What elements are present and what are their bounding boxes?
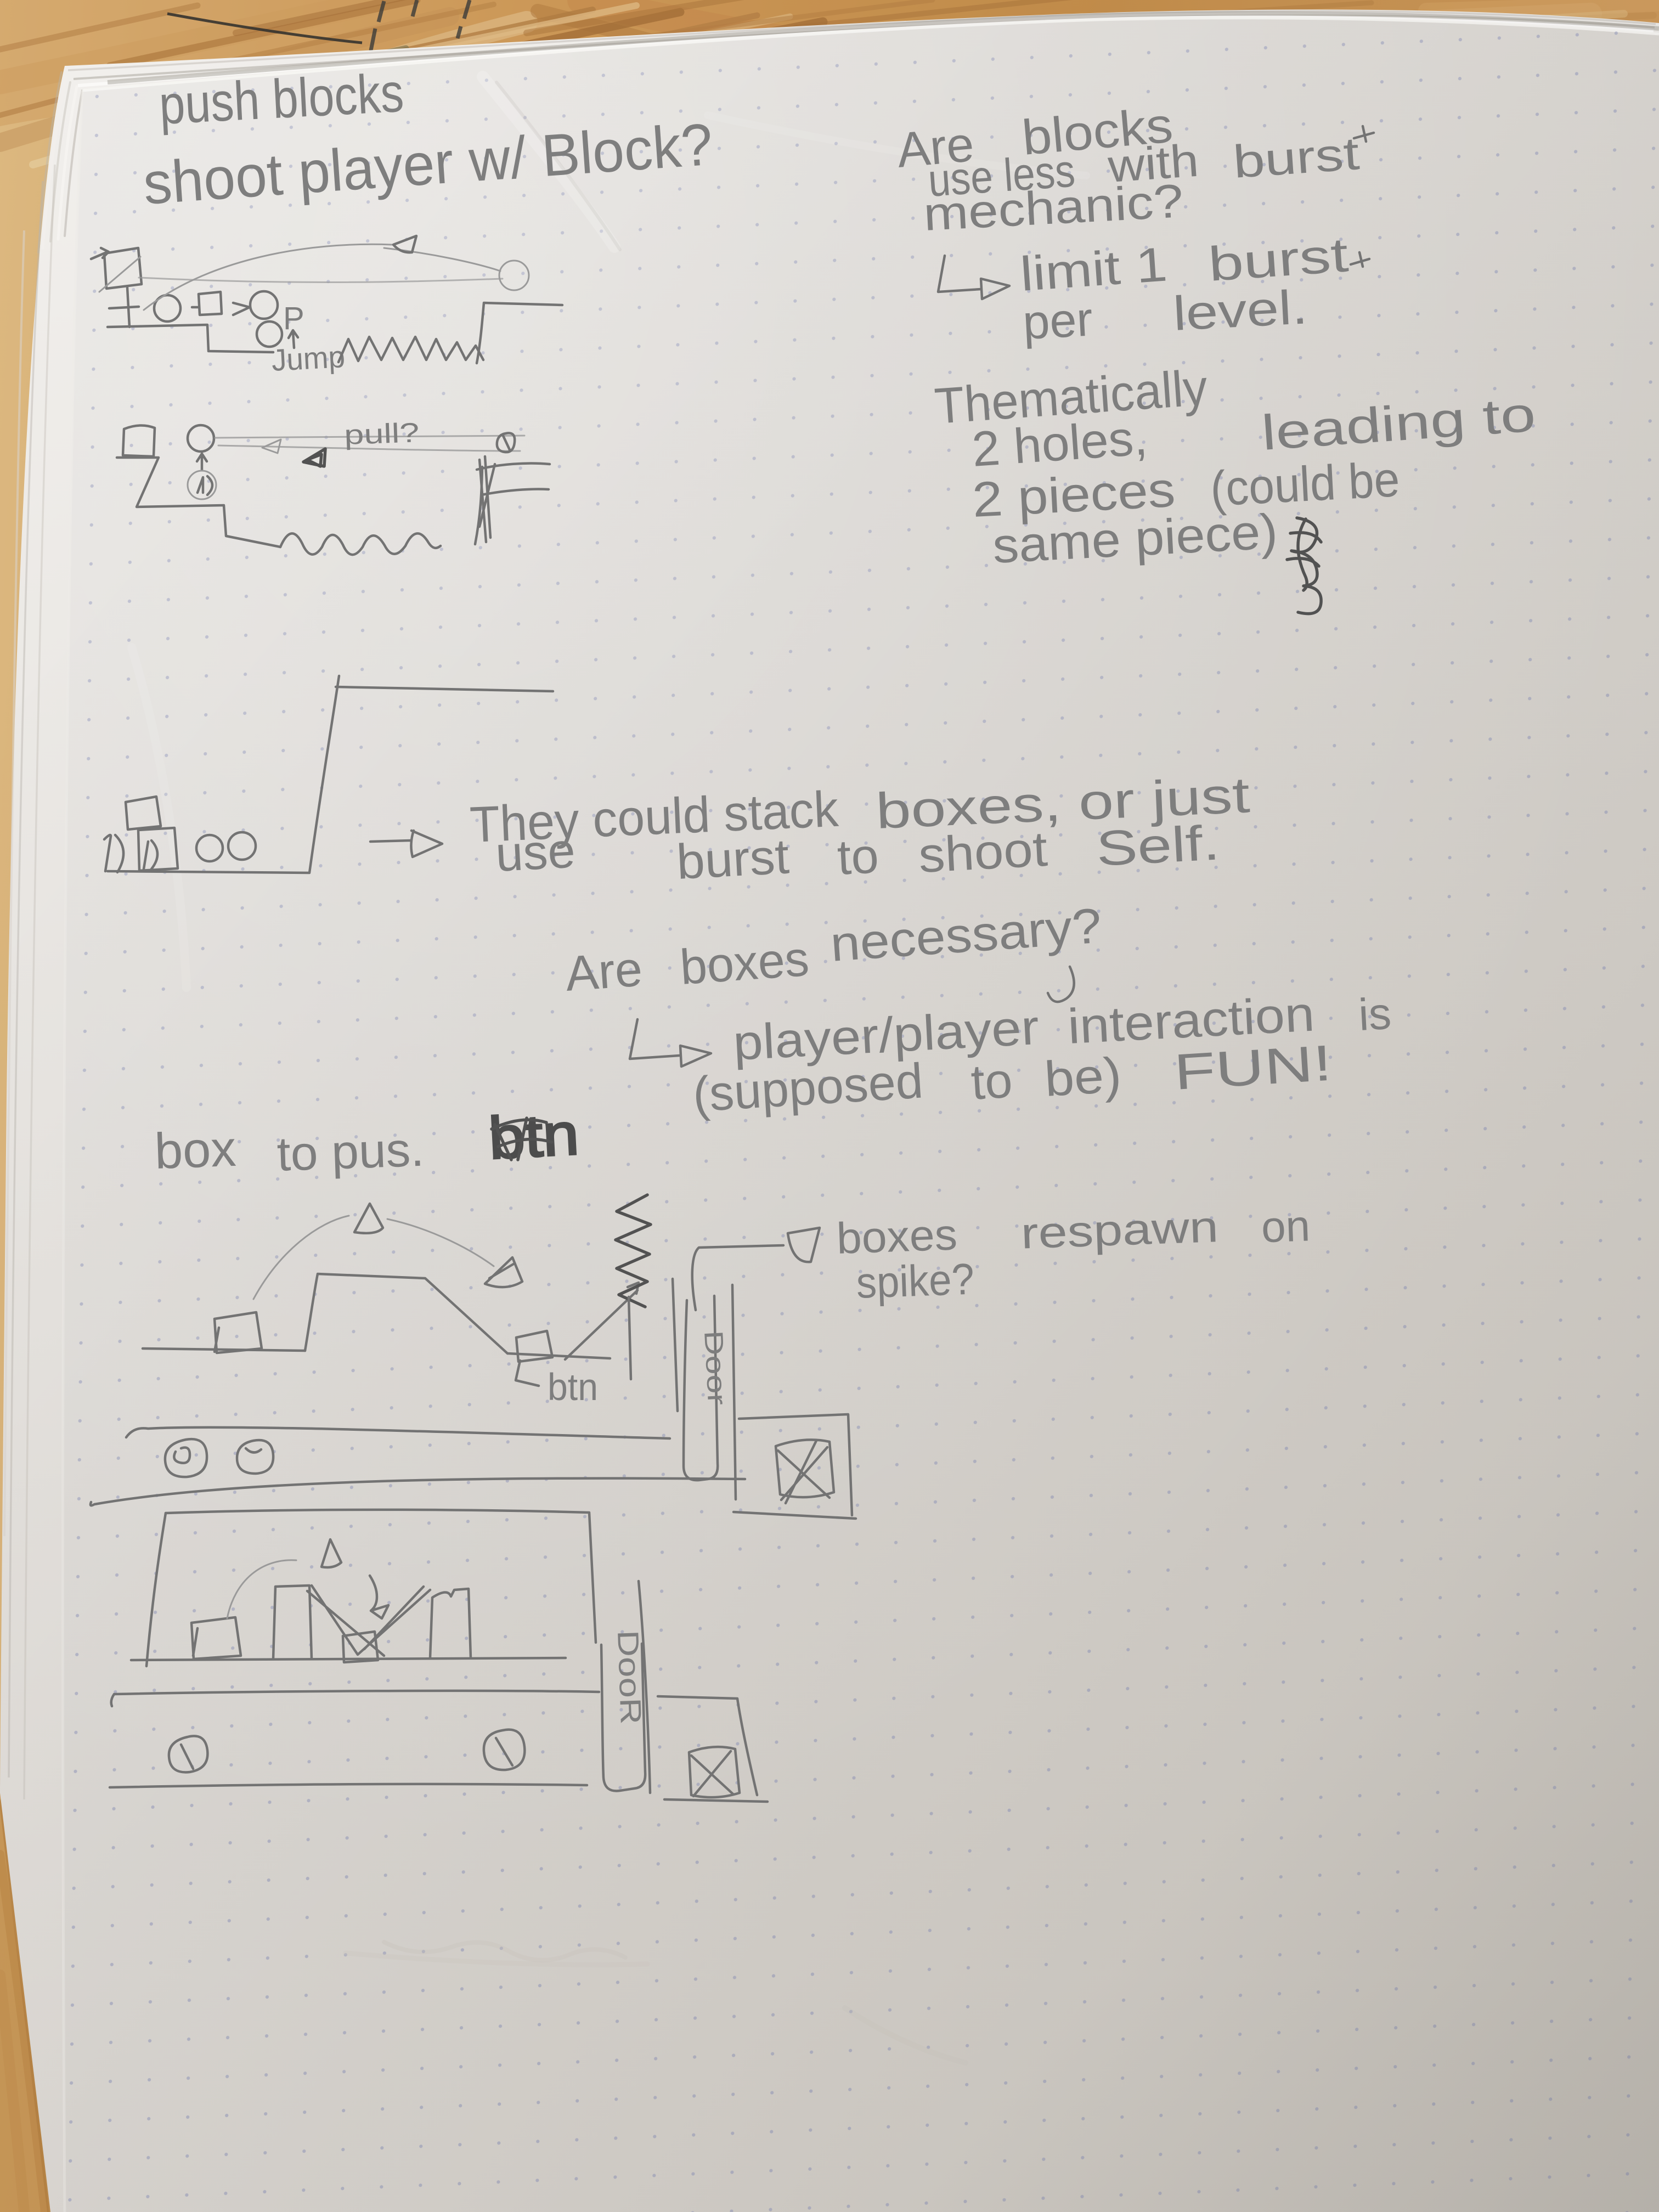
svg-text:DooR: DooR (611, 1629, 647, 1725)
svg-text:on: on (1260, 1201, 1311, 1251)
svg-text:use: use (494, 823, 577, 882)
svg-text:push blocks: push blocks (157, 62, 405, 136)
svg-text:to pus.: to pus. (276, 1122, 425, 1181)
svg-text:be): be) (1043, 1048, 1123, 1107)
svg-text:to: to (836, 828, 880, 885)
svg-text:box: box (154, 1121, 237, 1180)
svg-text:boxes: boxes (836, 1210, 958, 1263)
svg-text:btn: btn (548, 1365, 598, 1408)
svg-text:burst: burst (1232, 127, 1361, 188)
svg-text:is: is (1357, 989, 1392, 1040)
svg-text:Jump: Jump (270, 339, 346, 377)
svg-text:limit 1: limit 1 (1018, 237, 1169, 301)
svg-text:per: per (1022, 291, 1094, 349)
svg-text:pull?: pull? (343, 417, 420, 450)
svg-text:shoot: shoot (917, 822, 1049, 883)
svg-text:Are: Are (563, 941, 644, 1002)
svg-text:Door: Door (698, 1330, 731, 1406)
svg-text:FUN!: FUN! (1172, 1035, 1334, 1101)
svg-text:Self.: Self. (1095, 815, 1221, 877)
svg-text:boxes: boxes (678, 932, 810, 995)
svg-text:level.: level. (1172, 279, 1309, 341)
svg-text:spike?: spike? (855, 1254, 975, 1307)
svg-text:to: to (969, 1053, 1014, 1110)
svg-text:burst: burst (675, 829, 791, 890)
svg-text:respawn: respawn (1020, 1202, 1219, 1258)
